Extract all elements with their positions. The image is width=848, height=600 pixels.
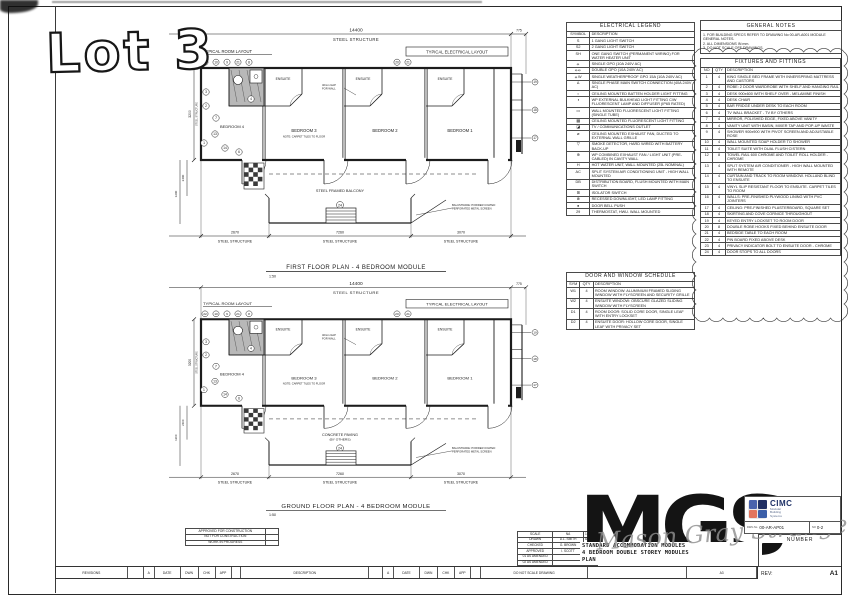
svg-text:14400: 14400	[349, 281, 363, 286]
scanned-drawing-sheet: { "sheet": { "lot_stamp": "Lot 3", "pape…	[0, 0, 848, 600]
fixtures-row: 164WALLS: PRE-FINISHED PLYWOOD LINING WI…	[701, 194, 841, 205]
svg-text:4: 4	[250, 347, 252, 351]
cimc-logo: CIMC ModularBuildingSystems	[744, 496, 841, 522]
svg-text:775: 775	[516, 282, 522, 286]
svg-text:2400: 2400	[181, 174, 185, 181]
svg-text:22: 22	[203, 312, 207, 316]
door-window-schedule-title: DOOR AND WINDOW SCHEDULE	[566, 272, 695, 281]
strip-cell: A	[144, 567, 155, 578]
svg-text:TYPICAL ELECTRICAL LAYOUT: TYPICAL ELECTRICAL LAYOUT	[426, 302, 488, 307]
dws-row: W14ROOM WINDOW: ALUMINIUM FRAMED SLIDING…	[567, 288, 695, 299]
svg-text:TYPICAL ELECTRICAL LAYOUT: TYPICAL ELECTRICAL LAYOUT	[426, 50, 488, 55]
svg-text:7: 7	[215, 116, 217, 120]
svg-text:BEDROOM 3: BEDROOM 3	[291, 376, 317, 381]
fixtures-row: 134SPLIT SYSTEM AIR CONDITIONER - HIGH W…	[701, 163, 841, 174]
strip-cell: CHK	[199, 567, 216, 578]
svg-text:STEEL STRUCTURE: STEEL STRUCTURE	[195, 351, 198, 374]
strip-cell: DESCRIPTION	[241, 567, 369, 578]
svg-text:PERFORATED METAL SCREEN: PERFORATED METAL SCREEN	[452, 449, 492, 453]
fixtures-row: 14KING SINGLE BED FRAME WITH INNERSPRING…	[701, 74, 841, 85]
ground-floor-plan: 14400775STEEL STRUCTURETYPICAL ROOM LAYO…	[154, 276, 546, 528]
drawing-number-row: DWG No 00-AR-AP01 NO 0-2	[744, 522, 841, 534]
svg-text:17: 17	[533, 383, 537, 387]
svg-text:2670: 2670	[231, 472, 239, 476]
svg-text:BALUSTRADE: POWDER COATED: BALUSTRADE: POWDER COATED	[452, 446, 495, 450]
general-note-line: 1. FOR BUILDING SPECS REFER TO DRAWING N…	[703, 33, 839, 42]
fixtures-row: 94SHOWER 900x900 WITH PIVOT SCREEN AND A…	[701, 129, 841, 140]
strip-spacer	[128, 567, 144, 578]
fixtures-fittings-table: FIXTURES AND FITTINGS NOQTYDESCRIPTION14…	[700, 58, 841, 316]
svg-text:1:50: 1:50	[269, 513, 276, 517]
svg-text:18: 18	[533, 108, 537, 112]
svg-text:STEEL STRUCTURE: STEEL STRUCTURE	[196, 102, 199, 126]
svg-text:2400: 2400	[181, 419, 185, 426]
svg-text:7260: 7260	[336, 472, 344, 476]
svg-text:18: 18	[533, 357, 537, 361]
svg-text:BALUSTRADE: POWDER COATED: BALUSTRADE: POWDER COATED	[452, 203, 495, 207]
general-notes-body: 1. FOR BUILDING SPECS REFER TO DRAWING N…	[701, 31, 841, 53]
legend-row: ⊕WP COMBINED EXHAUST FAN / LIGHT UNIT (P…	[567, 152, 695, 163]
svg-text:PERFORATED METAL SCREEN: PERFORATED METAL SCREEN	[452, 207, 492, 211]
cimc-logo-text: CIMC ModularBuildingSystems	[770, 500, 792, 519]
legend-row: 29THERMOSTAT, HWU. WALL MOUNTED	[567, 209, 695, 215]
door-window-schedule-table: DOOR AND WINDOW SCHEDULE SYMQTYDESCRIPTI…	[566, 272, 695, 332]
svg-text:8: 8	[248, 60, 250, 64]
svg-text:2: 2	[205, 104, 207, 108]
svg-text:STEEL STRUCTURE: STEEL STRUCTURE	[218, 480, 253, 484]
svg-text:STEEL STRUCTURE: STEEL STRUCTURE	[323, 480, 358, 484]
svg-text:BEDROOM 2: BEDROOM 2	[372, 376, 398, 381]
svg-text:775: 775	[516, 29, 522, 33]
svg-text:NOTE: CARPET TILES TO FLOOR: NOTE: CARPET TILES TO FLOOR	[283, 382, 325, 386]
svg-text:STEEL STRUCTURE: STEEL STRUCTURE	[333, 37, 379, 42]
svg-text:9: 9	[226, 312, 228, 316]
fixtures-row: 154VINYL SLIP RESISTANT FLOOR TO ENSUITE…	[701, 184, 841, 195]
fixtures-row: 244DOOR STOPS TO ALL DOORS	[701, 249, 841, 255]
svg-text:ENSUITE: ENSUITE	[356, 328, 372, 332]
rev-label: REV:	[761, 571, 772, 577]
svg-text:BEDROOM 4: BEDROOM 4	[220, 372, 245, 377]
svg-text:19: 19	[533, 80, 537, 84]
legend-row: ⌀CEILING MOUNTED EXHAUST FAN, DUCTED TO …	[567, 131, 695, 142]
svg-text:13: 13	[213, 380, 217, 384]
strip-cell: REVISIONS	[56, 567, 128, 578]
svg-text:9: 9	[226, 60, 228, 64]
svg-text:ENSUITE: ENSUITE	[438, 77, 453, 81]
dws-row: D14ROOM DOOR: SOLID CORE DOOR, SINGLE LE…	[567, 309, 695, 320]
approval-row: WORK IN PROGRESS	[186, 540, 279, 546]
fixtures-row: 128TOWEL RAIL 600 CHROME AND TOILET ROLL…	[701, 152, 841, 163]
svg-text:21: 21	[236, 312, 240, 316]
strip-cell: CHK	[438, 567, 455, 578]
svg-text:7: 7	[215, 365, 217, 369]
svg-text:1200: 1200	[174, 434, 178, 441]
svg-text:40mm GAP: 40mm GAP	[322, 83, 336, 87]
strip-cell: DO NOT SCALE DRAWING	[481, 567, 589, 578]
svg-text:STEEL FRAMED BALCONY: STEEL FRAMED BALCONY	[316, 189, 365, 193]
legend-row: SHONE GANG SWITCH (PERMANENT WIRING) FOR…	[567, 50, 695, 61]
svg-text:ENSUITE: ENSUITE	[356, 77, 371, 81]
electrical-legend-table: ELECTRICAL LEGEND SYMBOLDESCRIPTIONS1 GA…	[566, 22, 695, 269]
svg-text:1200: 1200	[174, 190, 178, 197]
svg-text:BEDROOM 1: BEDROOM 1	[447, 376, 473, 381]
fixtures-fittings-title: FIXTURES AND FITTINGS	[700, 58, 841, 67]
svg-text:ENSUITE: ENSUITE	[276, 328, 292, 332]
dws-row: W24ENSUITE WINDOW: OBSCURE GLAZED SLIDIN…	[567, 298, 695, 309]
svg-text:14: 14	[223, 146, 227, 150]
svg-text:ENSUITE: ENSUITE	[438, 328, 454, 332]
rev-value: A1	[830, 570, 838, 577]
scan-edge-line	[52, 1, 482, 3]
svg-text:FOR WALL: FOR WALL	[322, 87, 336, 91]
fixtures-row: 144CURTAIN AND TRACK TO ROOM WINDOW. HOL…	[701, 173, 841, 184]
svg-text:2: 2	[205, 353, 207, 357]
svg-text:20: 20	[395, 312, 399, 316]
svg-text:BEDROOM 4: BEDROOM 4	[220, 124, 245, 129]
legend-row: ▭WALL MOUNTED FLUORESCENT LIGHT FITTING …	[567, 107, 695, 118]
svg-text:TYPICAL ROOM LAYOUT: TYPICAL ROOM LAYOUT	[203, 301, 253, 306]
strip-spacer	[471, 567, 481, 578]
legend-row: ▽SMOKE DETECTOR, HARD WIRED WITH BATTERY…	[567, 141, 695, 152]
svg-text:ENSUITE: ENSUITE	[276, 77, 291, 81]
svg-text:STEEL STRUCTURE: STEEL STRUCTURE	[333, 290, 379, 295]
svg-text:3200: 3200	[188, 110, 192, 118]
svg-text:BEDROOM 3: BEDROOM 3	[291, 128, 317, 133]
sheet-margin-line	[55, 6, 56, 593]
svg-text:3070: 3070	[457, 472, 465, 476]
svg-text:GROUND FLOOR PLAN - 4 BEDROOM: GROUND FLOOR PLAN - 4 BEDROOM MODULE	[281, 504, 430, 510]
strip-cell: DATE	[155, 567, 181, 578]
legend-row: ACSPLIT SYSTEM AIR CONDITIONING UNIT - H…	[567, 169, 695, 180]
svg-text:6: 6	[238, 396, 240, 400]
sheet-number-cell: NO 0-2	[810, 522, 840, 533]
svg-text:13: 13	[213, 132, 217, 136]
strip-spacer	[369, 567, 383, 578]
svg-text:3070: 3070	[457, 231, 465, 235]
cimc-sub-line: Systems	[770, 515, 792, 519]
svg-text:17: 17	[533, 136, 537, 140]
drawing-title-line3: PLAN	[582, 557, 760, 564]
general-notes-title: GENERAL NOTES	[701, 21, 841, 31]
svg-text:7260: 7260	[336, 231, 344, 235]
svg-text:3: 3	[205, 340, 207, 344]
svg-text:3200: 3200	[188, 359, 192, 366]
svg-text:STEEL STRUCTURE: STEEL STRUCTURE	[218, 240, 253, 244]
svg-text:CONCRETE PAVING: CONCRETE PAVING	[322, 433, 358, 437]
svg-text:1: 1	[203, 141, 205, 145]
svg-text:19: 19	[533, 331, 537, 335]
dws-row: D24ENSUITE DOOR: HOLLOW CORE DOOR, SINGL…	[567, 319, 695, 330]
strip-cell: APP	[455, 567, 471, 578]
strip-spacer	[232, 567, 242, 578]
svg-text:14: 14	[223, 393, 227, 397]
svg-text:40mm GAP: 40mm GAP	[322, 333, 336, 337]
legend-row: ΔSINGLE PHASE MAIN SWITCH CONNECTION (40…	[567, 80, 695, 91]
svg-text:21: 21	[406, 60, 410, 64]
svg-text:10: 10	[214, 312, 218, 316]
strip-cell: DATE	[394, 567, 420, 578]
svg-text:8: 8	[248, 312, 250, 316]
legend-row: ◑WP EXTERNAL BULKHEAD LIGHT FITTING C/W …	[567, 97, 695, 108]
svg-text:STEEL STRUCTURE: STEEL STRUCTURE	[444, 240, 479, 244]
lot-stamp: Lot 3	[45, 18, 215, 85]
strip-cell: APP	[216, 567, 232, 578]
general-notes: GENERAL NOTES 1. FOR BUILDING SPECS REFE…	[700, 20, 842, 54]
drawing-number-cell: DWG No 00-AR-AP01	[745, 522, 810, 533]
cimc-logo-icon	[748, 500, 767, 519]
electrical-legend-title: ELECTRICAL LEGEND	[566, 22, 695, 31]
svg-text:3: 3	[205, 90, 207, 94]
approvals-table: APPROVED FOR CONSTRUCTIONNOT FOR CONSTRU…	[185, 528, 279, 546]
svg-text:(BY OTHERS): (BY OTHERS)	[329, 437, 350, 441]
rev-row: REV: A1	[758, 566, 841, 580]
svg-text:21: 21	[236, 60, 240, 64]
svg-text:1: 1	[203, 388, 205, 392]
svg-text:FOR WALL: FOR WALL	[322, 337, 336, 341]
strip-cell: DWN	[420, 567, 438, 578]
svg-text:STEEL STRUCTURE: STEEL STRUCTURE	[444, 480, 479, 484]
svg-text:4: 4	[250, 97, 252, 101]
svg-text:2670: 2670	[231, 231, 239, 235]
svg-text:BEDROOM 2: BEDROOM 2	[372, 128, 398, 133]
strip-cell: DWN	[181, 567, 199, 578]
svg-text:21: 21	[406, 312, 410, 316]
svg-text:FIRST FLOOR PLAN - 4 BEDROOM M: FIRST FLOOR PLAN - 4 BEDROOM MODULE	[286, 265, 426, 271]
svg-text:6: 6	[238, 150, 240, 154]
svg-text:NOTE: CARPET TILES TO FLOOR: NOTE: CARPET TILES TO FLOOR	[283, 135, 325, 139]
legend-row: DBDISTRIBUTION BOARD, FLUSH MOUNTED WITH…	[567, 179, 695, 190]
svg-text:14400: 14400	[349, 28, 363, 34]
svg-text:24: 24	[338, 203, 342, 207]
general-note-line: 3. DO NOT SCALE OFF DRAWINGS.	[703, 46, 839, 50]
svg-text:24: 24	[338, 446, 342, 450]
svg-text:STEEL STRUCTURE: STEEL STRUCTURE	[323, 240, 358, 244]
strip-cell: A	[383, 567, 394, 578]
svg-text:20: 20	[395, 60, 399, 64]
svg-text:BEDROOM 1: BEDROOM 1	[447, 128, 473, 133]
